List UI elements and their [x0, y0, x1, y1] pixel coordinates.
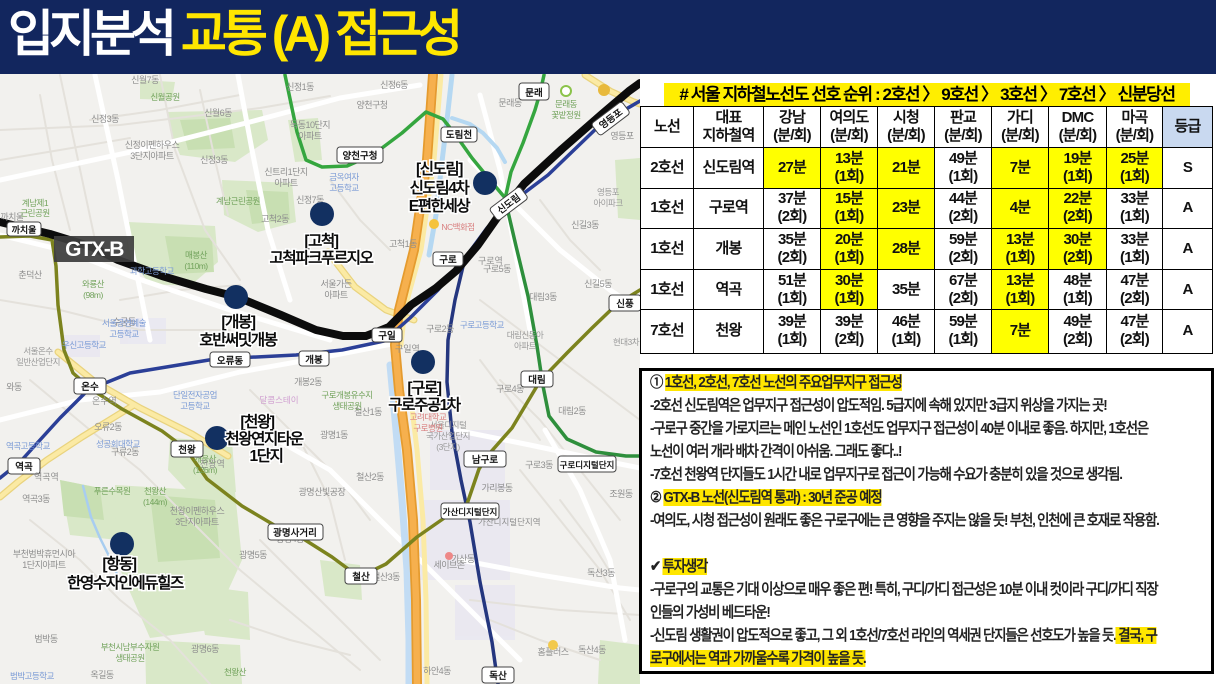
svg-text:일반산업단지: 일반산업단지 — [16, 357, 60, 367]
svg-text:신길5동: 신길5동 — [584, 279, 612, 289]
svg-text:와동: 와동 — [6, 381, 22, 392]
svg-text:생태공원: 생태공원 — [115, 653, 144, 663]
svg-text:신월6동: 신월6동 — [204, 107, 232, 118]
svg-text:신풍: 신풍 — [616, 298, 634, 310]
svg-text:단일전자공업: 단일전자공업 — [173, 390, 217, 400]
svg-text:구로디지털단지: 구로디지털단지 — [560, 460, 615, 470]
svg-text:문래: 문래 — [525, 87, 542, 99]
svg-text:신정3동: 신정3동 — [200, 155, 228, 165]
svg-text:양천구청: 양천구청 — [356, 100, 387, 110]
svg-text:(98m): (98m) — [83, 290, 103, 300]
svg-text:남구로: 남구로 — [472, 454, 498, 466]
svg-text:개봉: 개봉 — [305, 354, 323, 366]
svg-text:구로주공1차: 구로주공1차 — [388, 396, 462, 414]
svg-text:개봉2동: 개봉2동 — [294, 377, 322, 387]
svg-text:역곡: 역곡 — [15, 461, 33, 473]
svg-text:[항동]: [항동] — [102, 554, 136, 573]
svg-text:독산3동: 독산3동 — [587, 568, 615, 578]
svg-text:세이브존: 세이브존 — [433, 560, 464, 570]
svg-text:천왕산: 천왕산 — [144, 486, 167, 496]
svg-text:구로2동: 구로2동 — [426, 324, 454, 334]
svg-text:서울공연예술: 서울공연예술 — [102, 318, 147, 328]
svg-text:푸른수목원: 푸른수목원 — [94, 486, 131, 496]
svg-text:(3단지): (3단지) — [436, 442, 460, 452]
svg-text:고등학교: 고등학교 — [329, 183, 359, 193]
svg-text:조원동: 조원동 — [609, 489, 633, 499]
svg-text:[개봉]: [개봉] — [221, 312, 255, 331]
svg-text:서울온수: 서울온수 — [23, 346, 53, 356]
svg-text:철산: 철산 — [352, 571, 370, 583]
svg-text:문래동: 문래동 — [555, 99, 578, 109]
svg-text:1단지: 1단지 — [250, 447, 283, 465]
svg-text:광명산빛공장: 광명산빛공장 — [299, 486, 346, 497]
svg-text:온수: 온수 — [81, 382, 99, 393]
svg-text:과학고등학교: 과학고등학교 — [130, 266, 175, 276]
svg-text:성공회대학교: 성공회대학교 — [96, 439, 141, 449]
svg-text:역곡고등학교: 역곡고등학교 — [6, 441, 51, 451]
svg-text:신정이펜하우스: 신정이펜하우스 — [125, 140, 180, 150]
svg-text:대림2동: 대림2동 — [558, 405, 586, 416]
svg-text:신월공원: 신월공원 — [150, 92, 179, 102]
svg-text:달콤스테이: 달콤스테이 — [259, 395, 298, 405]
svg-text:대림: 대림 — [528, 374, 545, 386]
svg-text:(110m): (110m) — [184, 261, 208, 271]
svg-text:고등학교: 고등학교 — [180, 401, 210, 411]
svg-text:신정3동: 신정3동 — [91, 114, 119, 124]
svg-text:부천범박휴먼시아: 부천범박휴먼시아 — [13, 549, 76, 559]
svg-text:독산: 독산 — [489, 670, 507, 682]
svg-text:근린공원: 근린공원 — [20, 208, 49, 218]
svg-text:천왕역: 천왕역 — [200, 459, 225, 469]
svg-text:온수역: 온수역 — [92, 396, 117, 406]
svg-text:목동10단지: 목동10단지 — [290, 120, 330, 130]
svg-text:광명6동: 광명6동 — [191, 643, 219, 654]
svg-text:역곡3동: 역곡3동 — [22, 494, 50, 504]
svg-text:신정6동: 신정6동 — [380, 80, 408, 90]
svg-text:고척1동: 고척1동 — [389, 239, 417, 249]
svg-text:광명사거리: 광명사거리 — [273, 527, 317, 539]
svg-text:아파트: 아파트 — [274, 178, 298, 188]
svg-text:3단지아파트: 3단지아파트 — [130, 151, 174, 161]
svg-text:서울가든: 서울가든 — [320, 279, 351, 289]
svg-text:아파트: 아파트 — [514, 341, 537, 351]
svg-text:아이파크: 아이파크 — [593, 198, 623, 208]
svg-text:구로병원: 구로병원 — [413, 423, 442, 433]
svg-text:문래동: 문래동 — [498, 98, 522, 108]
svg-text:역곡역: 역곡역 — [34, 472, 59, 482]
svg-text:E편한세상: E편한세상 — [409, 196, 472, 215]
svg-text:구로: 구로 — [439, 255, 457, 266]
svg-text:신도림4차: 신도림4차 — [410, 178, 471, 197]
svg-text:대림3동: 대림3동 — [529, 291, 557, 302]
svg-text:가산디지털단지: 가산디지털단지 — [443, 507, 498, 517]
svg-text:[천왕]: [천왕] — [240, 413, 274, 431]
svg-text:[신도림]: [신도림] — [416, 159, 463, 178]
svg-text:구로고등학교: 구로고등학교 — [460, 320, 505, 330]
svg-text:광명5동: 광명5동 — [239, 549, 267, 560]
svg-text:계남근린공원: 계남근린공원 — [216, 196, 260, 206]
svg-text:천왕산: 천왕산 — [224, 667, 247, 677]
svg-text:천왕연지타운: 천왕연지타운 — [225, 430, 303, 448]
svg-text:고등학교: 고등학교 — [109, 329, 139, 339]
svg-text:구로개봉유수지: 구로개봉유수지 — [321, 390, 372, 400]
svg-text:구로3동: 구로3동 — [525, 460, 553, 470]
svg-text:와룡산: 와룡산 — [82, 279, 105, 289]
svg-text:우신고등학교: 우신고등학교 — [62, 340, 107, 350]
svg-text:(144m): (144m) — [143, 497, 168, 507]
svg-text:철산2동: 철산2동 — [356, 472, 384, 482]
svg-text:3단지아파트: 3단지아파트 — [175, 517, 219, 527]
svg-text:양천구청: 양천구청 — [343, 150, 378, 162]
svg-text:1단지아파트: 1단지아파트 — [22, 560, 66, 570]
svg-text:금옥여자: 금옥여자 — [329, 172, 359, 182]
svg-text:생태공원: 생태공원 — [332, 401, 361, 411]
svg-text:독산4동: 독산4동 — [578, 645, 606, 655]
svg-text:춘덕산: 춘덕산 — [18, 270, 42, 280]
svg-text:신월7동: 신월7동 — [131, 74, 159, 85]
svg-text:천왕: 천왕 — [178, 444, 196, 456]
svg-text:대림신동아: 대림신동아 — [507, 330, 544, 340]
svg-text:신트리1단지: 신트리1단지 — [264, 167, 308, 177]
svg-text:범박동: 범박동 — [34, 634, 58, 644]
svg-text:영등포: 영등포 — [610, 131, 634, 141]
svg-text:부천시남부수자원: 부천시남부수자원 — [101, 642, 160, 652]
svg-text:구로역: 구로역 — [478, 256, 503, 266]
svg-text:꽃밭정원: 꽃밭정원 — [551, 110, 580, 120]
svg-text:범박고등학교: 범박고등학교 — [10, 671, 55, 681]
svg-text:천왕이펜하우스: 천왕이펜하우스 — [170, 506, 225, 516]
svg-text:옥길동: 옥길동 — [90, 670, 114, 680]
svg-text:현대3차: 현대3차 — [613, 337, 640, 347]
svg-text:구일: 구일 — [378, 330, 396, 342]
svg-text:고척파크푸르지오: 고척파크푸르지오 — [270, 248, 374, 267]
svg-text:[고척]: [고척] — [304, 231, 338, 250]
svg-text:광명1동: 광명1동 — [320, 429, 348, 440]
svg-text:아파트: 아파트 — [324, 290, 348, 300]
svg-text:신길3동: 신길3동 — [571, 220, 599, 230]
svg-text:한영수자인에듀힐즈: 한영수자인에듀힐즈 — [67, 573, 184, 592]
svg-text:계남제1: 계남제1 — [22, 198, 49, 208]
svg-text:호반써밋개봉: 호반써밋개봉 — [199, 330, 277, 349]
svg-text:도림천: 도림천 — [446, 129, 472, 141]
svg-text:까치울: 까치울 — [12, 224, 37, 235]
svg-text:오류2동: 오류2동 — [94, 422, 122, 432]
svg-text:고척2동: 고척2동 — [261, 214, 289, 224]
svg-text:매봉산: 매봉산 — [185, 250, 208, 260]
svg-text:신정1동: 신정1동 — [286, 82, 314, 92]
svg-text:가산디지털단지역: 가산디지털단지역 — [478, 517, 541, 527]
svg-text:구로4동: 구로4동 — [496, 384, 524, 394]
svg-text:아파트: 아파트 — [298, 131, 322, 141]
svg-text:하안4동: 하안4동 — [423, 666, 451, 676]
svg-text:가리봉동: 가리봉동 — [481, 483, 512, 493]
svg-text:오류동: 오류동 — [217, 356, 243, 367]
svg-text:영등포: 영등포 — [597, 187, 620, 197]
svg-text:NC백화점: NC백화점 — [441, 222, 474, 232]
svg-text:[구로]: [구로] — [407, 379, 441, 397]
svg-text:GTX-B: GTX-B — [65, 238, 124, 261]
